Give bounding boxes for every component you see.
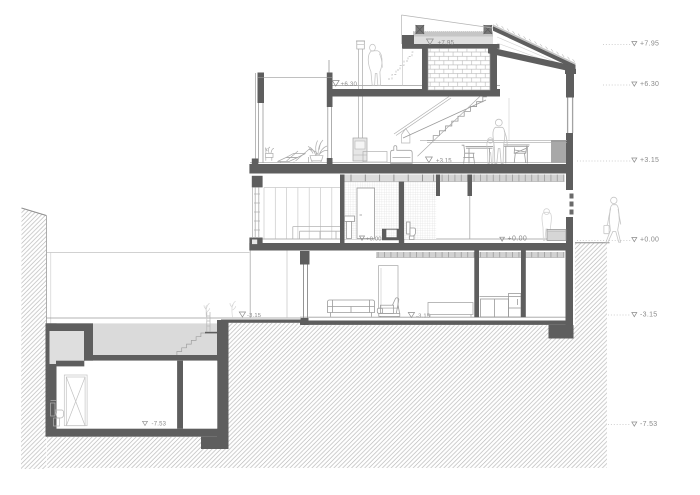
svg-text:+0.00: +0.00 [640,237,659,244]
svg-text:-3.15: -3.15 [640,312,657,319]
svg-text:+7.95: +7.95 [438,39,455,46]
svg-text:+0.00: +0.00 [508,236,528,243]
svg-text:-3.15: -3.15 [247,313,261,319]
svg-text:-3.15: -3.15 [416,313,430,319]
svg-text:+7.95: +7.95 [640,41,659,48]
svg-text:+3.15: +3.15 [436,158,452,164]
svg-text:-7.53: -7.53 [640,421,657,428]
svg-text:+6.30: +6.30 [640,81,659,88]
svg-text:-7.53: -7.53 [152,421,167,427]
svg-text:+6.30: +6.30 [341,81,358,88]
svg-text:+3.15: +3.15 [640,157,659,164]
svg-text:+0.00: +0.00 [366,236,382,242]
